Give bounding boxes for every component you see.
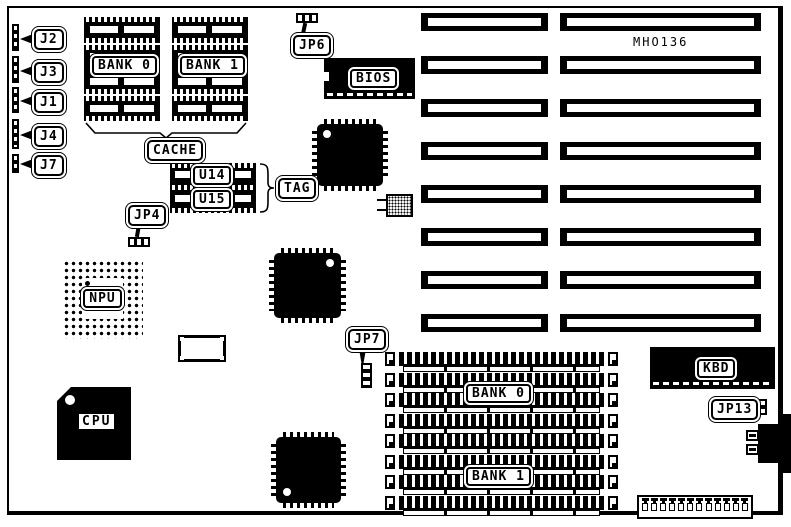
qfp-chip-2 <box>274 253 341 318</box>
cache-bank0-label: BANK 0 <box>92 56 157 75</box>
jumper-label-j3: J3 <box>34 62 64 83</box>
isa-slot <box>560 99 761 117</box>
pointer-icon <box>20 66 33 76</box>
chip-notch <box>324 72 329 81</box>
pin-header-j7 <box>12 154 19 173</box>
isa-slot <box>560 13 761 31</box>
tag-label: TAG <box>278 178 316 199</box>
pointer-icon <box>20 96 33 106</box>
cache-label: CACHE <box>147 140 203 161</box>
pin1-dot <box>85 281 90 286</box>
connector-prong <box>746 430 759 441</box>
simm-socket <box>385 414 618 433</box>
pin-header-jp4 <box>128 237 150 247</box>
pin-header-j1 <box>12 87 19 113</box>
npu-label: NPU <box>83 289 121 308</box>
isa-slot <box>421 314 548 332</box>
keyboard-connector-step <box>778 463 791 473</box>
u14-label: U14 <box>193 166 231 185</box>
isa-slot <box>421 56 548 74</box>
crystal-lead <box>377 199 387 201</box>
cache-bank1-label: BANK 1 <box>180 56 245 75</box>
jumper-label-j7: J7 <box>34 155 64 176</box>
isa-slot <box>560 185 761 203</box>
kbd-label: KBD <box>697 359 735 378</box>
simm-socket <box>385 496 618 515</box>
memory-bank1-label: BANK 1 <box>466 467 531 486</box>
isa-slot <box>421 228 548 246</box>
npu-socket-center: NPU <box>82 278 123 319</box>
bios-label: BIOS <box>350 69 397 88</box>
board-model-label: MHO136 <box>631 35 690 49</box>
isa-slot <box>421 185 548 203</box>
pin-row <box>653 382 772 385</box>
pin-header-jp7 <box>361 363 372 388</box>
npu-socket: NPU <box>62 259 143 339</box>
jumper-label-jp7: JP7 <box>348 329 386 350</box>
jumper-label-jp6: JP6 <box>293 35 331 56</box>
pointer-icon <box>20 159 33 169</box>
jumper-label-j2: J2 <box>34 29 64 50</box>
empty-socket <box>178 335 226 362</box>
jumper-label-jp4: JP4 <box>128 205 166 226</box>
isa-slot <box>560 142 761 160</box>
isa-slot <box>560 271 761 289</box>
pin-header-j2 <box>12 24 19 51</box>
jumper-label-jp13: JP13 <box>711 399 758 420</box>
pin-header-j3 <box>12 56 19 83</box>
pin-header-jp6 <box>296 13 318 23</box>
power-connector <box>637 495 753 519</box>
pin-header-j4 <box>12 119 19 149</box>
isa-slot <box>560 228 761 246</box>
keyboard-connector <box>758 424 791 463</box>
cpu-label: CPU <box>79 414 114 429</box>
pointer-icon <box>20 130 33 140</box>
jumper-label-j4: J4 <box>34 126 64 147</box>
crystal-lead <box>377 209 387 211</box>
motherboard-diagram: J2 J3 J1 J4 J7 BANK 0 BANK 1 CACHE <box>0 0 791 527</box>
cache-brace-icon <box>84 122 248 140</box>
isa-slot <box>560 314 761 332</box>
isa-slot <box>421 99 548 117</box>
simm-socket <box>385 352 618 371</box>
qfp-chip-3 <box>276 437 341 503</box>
pointer-icon <box>20 34 33 44</box>
isa-slot <box>421 142 548 160</box>
keyboard-connector-step <box>778 414 791 424</box>
isa-slot <box>560 56 761 74</box>
qfp-chip-1 <box>317 124 383 186</box>
simm-socket <box>385 434 618 453</box>
u15-label: U15 <box>193 190 231 209</box>
memory-bank0-label: BANK 0 <box>466 384 531 403</box>
pin1-dot <box>65 395 75 405</box>
tag-brace-icon <box>258 162 276 214</box>
pin-row <box>327 93 412 96</box>
crystal-oscillator <box>386 194 413 217</box>
isa-slot <box>421 13 548 31</box>
jumper-label-j1: J1 <box>34 92 64 113</box>
isa-slot <box>421 271 548 289</box>
connector-prong <box>746 444 759 455</box>
